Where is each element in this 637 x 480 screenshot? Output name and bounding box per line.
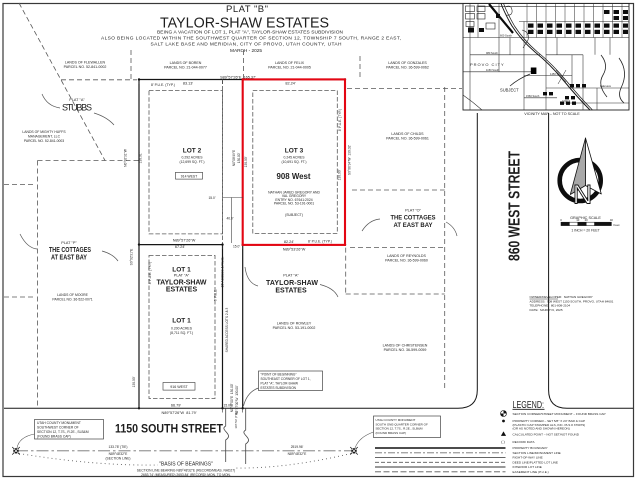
svg-text:908 West: 908 West [277, 172, 311, 181]
svg-text:67.24': 67.24' [175, 245, 186, 249]
svg-text:PARCEL NO. 53-191-0002: PARCEL NO. 53-191-0002 [273, 326, 316, 330]
svg-text:860 WEST STREET: 860 WEST STREET [507, 151, 524, 261]
svg-text:ESTATES SUBDIVISION: ESTATES SUBDIVISION [261, 386, 297, 390]
svg-text:0.200 ACRES: 0.200 ACRES [171, 326, 193, 330]
svg-text:(OR AS NOTED AND SHOWN HEREON): (OR AS NOTED AND SHOWN HEREON) [513, 427, 570, 431]
svg-text:20: 20 [585, 218, 589, 222]
svg-text:ESTATES: ESTATES [166, 286, 198, 293]
svg-text:66.79': 66.79' [171, 404, 182, 408]
svg-text:PROPERTY BOUNDARY: PROPERTY BOUNDARY [513, 446, 548, 450]
svg-text:S89°57'26"E 165.37': S89°57'26"E 165.37' [220, 76, 256, 80]
svg-text:LANDS OF REYNOLDS: LANDS OF REYNOLDS [387, 254, 426, 258]
svg-text:1150 SOUTH STREET: 1150 SOUTH STREET [115, 422, 224, 436]
svg-text:8' P.U.E. (TYP.): 8' P.U.E. (TYP.) [338, 109, 342, 132]
svg-text:PLAT "A": PLAT "A" [174, 274, 190, 278]
svg-text:"POINT OF BEGINNING": "POINT OF BEGINNING" [261, 373, 297, 377]
svg-text:PLAT "B": PLAT "B" [226, 4, 268, 15]
svg-text:TAYLOR-SHAW ESTATES: TAYLOR-SHAW ESTATES [160, 15, 329, 32]
svg-text:PLAT "P": PLAT "P" [61, 241, 77, 245]
svg-text:PARCEL NO. 36-522-0071: PARCEL NO. 36-522-0071 [52, 298, 92, 302]
svg-text:RECORD DATA: RECORD DATA [513, 440, 536, 444]
svg-text:N0°08'49"E: N0°08'49"E [232, 150, 236, 166]
svg-text:980 South: 980 South [486, 51, 498, 55]
svg-text:1150 South: 1150 South [486, 68, 500, 72]
svg-text:PARCEL NO. 53-191-0001: PARCEL NO. 53-191-0001 [274, 202, 314, 206]
svg-text:CALCULATED POINT – NOT SET/NOT: CALCULATED POINT – NOT SET/NOT FOUND [513, 433, 580, 437]
svg-text:LANDS OF MOORE: LANDS OF MOORE [57, 293, 88, 297]
svg-text:PARCEL NO. 36-599-0062: PARCEL NO. 36-599-0062 [386, 66, 429, 70]
svg-text:N: N [573, 180, 593, 210]
svg-text:LOT 3: LOT 3 [285, 147, 304, 154]
svg-text:Feet: Feet [614, 223, 620, 227]
svg-text:8' P.U.E. (TYP.): 8' P.U.E. (TYP.) [308, 240, 332, 244]
svg-text:130.00': 130.00' [338, 169, 342, 180]
svg-text:LANDS OF ROWLEY: LANDS OF ROWLEY [277, 322, 312, 326]
svg-text:0.292 ACRES: 0.292 ACRES [182, 155, 204, 159]
svg-text:PLAT "O": PLAT "O" [405, 209, 422, 213]
svg-text:MANAGEMENT, LLC: MANAGEMENT, LLC [28, 135, 61, 139]
svg-text:THE COTTAGES: THE COTTAGES [391, 215, 436, 222]
svg-text:SUBJECT: SUBJECT [500, 88, 519, 93]
svg-text:LOT 1: LOT 1 [172, 266, 191, 273]
svg-text:PARCEL NO. 52-841-0002: PARCEL NO. 52-841-0002 [64, 65, 107, 69]
svg-text:130.00': 130.00' [244, 156, 248, 167]
svg-text:N89°57'26"W: N89°57'26"W [173, 238, 196, 242]
svg-text:ESTATES: ESTATES [275, 287, 307, 294]
svg-text:15' ACCESS & P.U.E.: 15' ACCESS & P.U.E. [220, 257, 224, 288]
svg-text:RIGHT-OF-WAY LINE: RIGHT-OF-WAY LINE [513, 456, 543, 460]
svg-text:S0°06'34"W 130.02': S0°06'34"W 130.02' [348, 145, 352, 176]
svg-text:THE COTTAGES: THE COTTAGES [49, 247, 91, 254]
svg-text:(SUBJECT): (SUBJECT) [285, 213, 303, 217]
svg-text:"BASIS OF BEARINGS": "BASIS OF BEARINGS" [159, 462, 213, 468]
svg-text:LANDS OF FELIX: LANDS OF FELIX [275, 61, 305, 65]
svg-text:PLAT "A", TAYLOR-SHAW: PLAT "A", TAYLOR-SHAW [261, 382, 298, 386]
svg-text:PARCEL NO. 36-599-0060: PARCEL NO. 36-599-0060 [385, 259, 428, 263]
svg-text:SECTION 12, T.7S., R.2E., SLB&: SECTION 12, T.7S., R.2E., SLB&M [37, 430, 89, 434]
svg-text:15.0': 15.0' [233, 245, 240, 249]
svg-text:LANDS OF CHILDS: LANDS OF CHILDS [391, 132, 424, 136]
svg-text:Lakeview: Lakeview [600, 84, 611, 88]
svg-text:(8,711 SQ. FT.): (8,711 SQ. FT.) [170, 331, 193, 335]
svg-text:N89°57'26"W 81.79': N89°57'26"W 81.79' [162, 411, 197, 415]
svg-text:130.01': 130.01' [139, 152, 143, 163]
svg-text:914 WEST: 914 WEST [181, 174, 197, 178]
svg-text:N0°02'31"W: N0°02'31"W [124, 148, 128, 167]
svg-text:(FOUND BRASS CAP): (FOUND BRASS CAP) [376, 431, 407, 435]
svg-text:TAYLOR-SHAW: TAYLOR-SHAW [266, 280, 318, 287]
svg-text:PROVO CITY: PROVO CITY [470, 62, 505, 67]
svg-text:LOT 2: LOT 2 [183, 147, 202, 154]
svg-text:LANDS OF CHRISTENSEN: LANDS OF CHRISTENSEN [383, 344, 428, 348]
svg-text:PARCEL NO. 21-044-0005: PARCEL NO. 21-044-0005 [268, 66, 311, 70]
svg-text:DEED LINE/PLATTED LOT LINE: DEED LINE/PLATTED LOT LINE [513, 461, 558, 465]
svg-text:916 WEST: 916 WEST [170, 385, 188, 389]
svg-text:(SECTION LINE): (SECTION LINE) [105, 457, 130, 461]
svg-text:S0°47'00"W 130.00': S0°47'00"W 130.00' [235, 385, 239, 415]
svg-text:15.0': 15.0' [208, 196, 215, 200]
svg-text:UTAH COUNTY MONUMENT: UTAH COUNTY MONUMENT [37, 421, 81, 425]
svg-text:S0°02'31"E: S0°02'31"E [130, 248, 134, 265]
svg-text:LANDS OF FLEWALLEN: LANDS OF FLEWALLEN [65, 60, 106, 64]
svg-text:8' P.U.E. (TYP.): 8' P.U.E. (TYP.) [148, 262, 152, 285]
svg-text:AT EAST BAY: AT EAST BAY [51, 255, 87, 262]
svg-text:PARCEL NO. 21-044-0077: PARCEL NO. 21-044-0077 [164, 66, 207, 70]
svg-text:40: 40 [610, 218, 614, 222]
svg-text:LOT 1: LOT 1 [172, 318, 191, 325]
svg-text:0.245 ACRES: 0.245 ACRES [284, 155, 306, 159]
svg-text:DATE: MARCH 6, 2025: DATE: MARCH 6, 2025 [530, 308, 563, 312]
svg-text:INTERIOR LOT LINE: INTERIOR LOT LINE [513, 465, 542, 469]
svg-text:SECTION CORNER/STREET MONUMENT: SECTION CORNER/STREET MONUMENT – FOUND B… [513, 412, 606, 416]
svg-text:133.78' (TIE): 133.78' (TIE) [109, 445, 128, 449]
svg-text:N89°53'26"W: N89°53'26"W [283, 248, 306, 252]
svg-text:8' P.U.E. (TYP.): 8' P.U.E. (TYP.) [151, 83, 175, 87]
svg-text:PARCEL NO. 36-599-0061: PARCEL NO. 36-599-0061 [386, 137, 429, 141]
svg-text:BEING A VACATION OF LOT 1, PLA: BEING A VACATION OF LOT 1, PLAT "A", TAY… [157, 30, 344, 36]
svg-text:83.13': 83.13' [183, 82, 194, 86]
svg-text:SOUTHWEST CORNER OF: SOUTHWEST CORNER OF [37, 426, 79, 430]
svg-text:VICINITY MAP – NOT TO SCALE: VICINITY MAP – NOT TO SCALE [524, 112, 580, 116]
svg-text:2653.74' (MEASURED) 2653.84' (: 2653.74' (MEASURED) 2653.84' (RECORD) MO… [141, 473, 231, 477]
svg-text:1450 S: 1450 S [550, 72, 558, 76]
svg-text:SECTION LINE BEARING N89°48'32: SECTION LINE BEARING N89°48'32"E (RECORD… [137, 468, 235, 472]
svg-text:EASEMENT LINE (P.U.E.): EASEMENT LINE (P.U.E.) [513, 470, 549, 474]
svg-text:10: 10 [576, 218, 580, 222]
svg-text:82.24': 82.24' [285, 82, 296, 86]
svg-text:PARCEL NO. 52-841-0003: PARCEL NO. 52-841-0003 [24, 139, 64, 143]
svg-text:600 South: 600 South [500, 34, 512, 38]
svg-text:2519.96': 2519.96' [291, 445, 304, 449]
svg-text:SECTION LINE/MONUMENT LINE: SECTION LINE/MONUMENT LINE [513, 451, 561, 455]
svg-text:5' P.U.E.: 5' P.U.E. [213, 289, 217, 301]
svg-text:PLAT "A": PLAT "A" [283, 274, 299, 278]
svg-text:MARCH - 2025: MARCH - 2025 [230, 48, 262, 54]
svg-text:130.00': 130.00' [132, 376, 136, 387]
svg-text:LANDS OF BOREN: LANDS OF BOREN [170, 61, 202, 65]
svg-text:SOUTHEAST CORNER OF LOT 1,: SOUTHEAST CORNER OF LOT 1, [261, 377, 311, 381]
svg-text:1 INCH = 20 FEET: 1 INCH = 20 FEET [571, 229, 599, 233]
svg-text:SALT LAKE BASE AND MERIDIAN, C: SALT LAKE BASE AND MERIDIAN, CITY OF PRO… [151, 42, 343, 48]
svg-text:LANDS OF GONZALES: LANDS OF GONZALES [388, 61, 427, 65]
svg-text:( ): ( ) [501, 440, 505, 444]
svg-text:1560 South: 1560 South [526, 94, 540, 98]
svg-text:PARCEL NO. 36-599-0059: PARCEL NO. 36-599-0059 [384, 348, 427, 352]
svg-text:AT EAST BAY: AT EAST BAY [394, 222, 433, 229]
svg-text:ALSO BEING LOCATED WITHIN THE: ALSO BEING LOCATED WITHIN THE SOUTHWEST … [101, 36, 401, 42]
svg-text:82.24': 82.24' [284, 240, 295, 244]
svg-text:N89°48'32"E: N89°48'32"E [109, 452, 129, 456]
svg-text:107.53' (TIE): 107.53' (TIE) [234, 411, 238, 428]
svg-text:STUBBS: STUBBS [62, 102, 92, 112]
svg-text:1600 S: 1600 S [562, 99, 570, 103]
svg-text:130.00': 130.00' [237, 152, 241, 163]
svg-text:40.0': 40.0' [226, 217, 233, 221]
svg-text:(12,699 SQ. FT.): (12,699 SQ. FT.) [179, 160, 204, 164]
svg-text:SHARED ACCESS LOTS 2 & 3: SHARED ACCESS LOTS 2 & 3 [225, 307, 229, 352]
svg-text:0: 0 [560, 218, 562, 222]
svg-text:(FOUND BRASS CAP): (FOUND BRASS CAP) [37, 435, 71, 439]
svg-text:(10,691 SQ. FT.): (10,691 SQ. FT.) [281, 160, 306, 164]
svg-text:LANDS OF MIGHTY HUFFS: LANDS OF MIGHTY HUFFS [22, 130, 66, 134]
svg-text:N89°48'32"E: N89°48'32"E [288, 452, 308, 456]
